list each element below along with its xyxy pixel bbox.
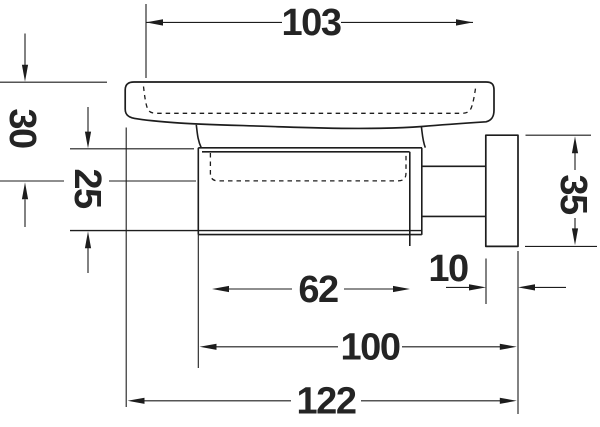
dim-30-label: 30 [1, 108, 43, 148]
dim-122-arrowhead-right [500, 398, 517, 404]
dim-holder-depth-from-wall: 100 [200, 327, 517, 369]
dim-62-label: 62 [298, 269, 338, 311]
wall-plate-outline [486, 135, 518, 246]
dim-wall-plate-depth: 10 [428, 248, 566, 291]
dim-holder-inner-width: 62 [212, 269, 410, 311]
dim-25-arrowhead-up [85, 231, 91, 248]
dim-103-arrowhead-left [146, 19, 163, 25]
dim-wall-plate-height: 35 [552, 136, 594, 245]
dim-35-arrowhead-up [572, 136, 578, 153]
dim-25-label: 25 [66, 168, 108, 209]
dish-left-drop-edge [196, 125, 201, 148]
ring-inner-hidden-line [210, 153, 406, 181]
dim-103-arrowhead-right [456, 19, 473, 25]
dim-100-label: 100 [341, 327, 400, 369]
dim-overall-depth: 122 [128, 381, 517, 423]
dim-100-arrowhead-right [500, 344, 517, 350]
drawing-canvas: 103 30 25 35 62 10 [0, 0, 600, 427]
dim-10-arrowhead-left [469, 284, 486, 290]
dim-30-arrowhead-down [22, 65, 28, 82]
mounting-arm [422, 166, 486, 216]
dim-dish-inner-width: 103 [146, 2, 473, 44]
dim-35-label: 35 [552, 174, 594, 215]
dim-122-arrowhead-left [128, 398, 145, 404]
dim-35-arrowhead-down [572, 228, 578, 245]
soap-dish-profile [125, 82, 494, 148]
technical-drawing: 103 30 25 35 62 10 [0, 0, 600, 427]
dim-30-arrowhead-up [22, 182, 28, 199]
holder-ring [70, 148, 422, 246]
dim-25-arrowhead-down [85, 132, 91, 149]
dim-dish-height: 30 [1, 34, 43, 228]
dim-holder-height: 25 [66, 107, 108, 273]
dim-62-arrowhead-left [212, 286, 229, 292]
dim-10-arrowhead-right [518, 284, 535, 290]
wall-plate [486, 135, 518, 246]
dim-103-label: 103 [282, 2, 341, 44]
dim-100-arrowhead-left [200, 344, 217, 350]
dim-62-arrowhead-right [393, 286, 410, 292]
dish-outline [125, 82, 494, 128]
dim-10-label: 10 [428, 248, 468, 290]
dish-right-drop-edge [421, 127, 425, 148]
dim-122-label: 122 [297, 381, 356, 423]
